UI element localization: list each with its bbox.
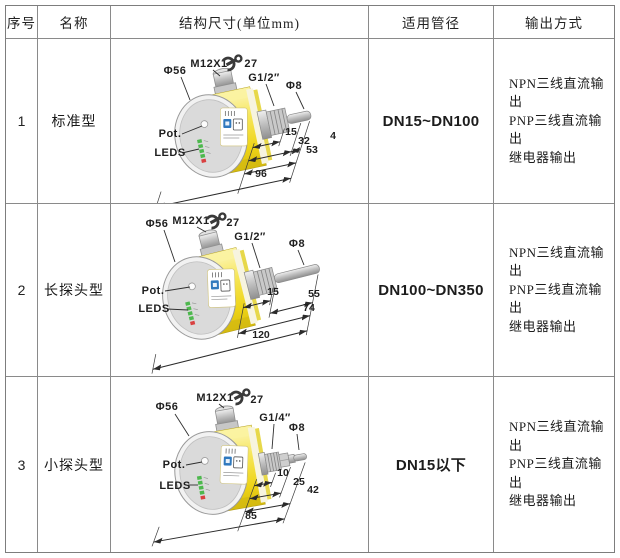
row1-output: NPN三线直流输出 PNP三线直流输出 继电器输出 — [494, 39, 614, 204]
dim-value: 53 — [306, 144, 318, 156]
header-pipe-label: 适用管径 — [402, 12, 460, 32]
product-label — [220, 108, 247, 146]
row2-name: 长探头型 — [38, 204, 111, 377]
probe — [286, 110, 311, 124]
output-line: NPN三线直流输出 — [509, 75, 614, 112]
output-line: NPN三线直流输出 — [509, 418, 614, 455]
output-line: PNP三线直流输出 — [509, 281, 614, 318]
diameter-label: Φ56 — [146, 218, 169, 230]
header-pipe: 适用管径 — [369, 6, 494, 39]
row3-name: 小探头型 — [38, 377, 111, 552]
probe-diameter-label: Φ8 — [289, 422, 305, 434]
pipe-range-label: DN15~DN100 — [383, 113, 480, 130]
dim-value: 55 — [308, 288, 320, 300]
row-number-label: 2 — [18, 282, 26, 298]
process-thread-label: G1/4″ — [259, 412, 291, 424]
output-line: NPN三线直流输出 — [509, 244, 614, 281]
probe-diameter-label: Φ8 — [286, 80, 302, 92]
output-line: 继电器输出 — [509, 149, 577, 167]
header-structure: 结构尺寸(单位mm) — [111, 6, 369, 39]
row1-pipe: DN15~DN100 — [369, 39, 494, 204]
dim-value: 10 — [277, 467, 289, 479]
wrench-size-label: 27 — [250, 394, 263, 406]
dim-value: 25 — [293, 476, 305, 488]
row2-output: NPN三线直流输出 PNP三线直流输出 继电器输出 — [494, 204, 614, 377]
leds-label: LEDS — [154, 147, 185, 159]
spec-sheet: 序号 名称 结构尺寸(单位mm) 适用管径 输出方式 1 标准型 — [0, 0, 620, 558]
process-thread-label: G1/2″ — [248, 72, 280, 84]
header-name: 名称 — [38, 6, 111, 39]
output-line: PNP三线直流输出 — [509, 455, 614, 492]
row1-number: 1 — [6, 39, 38, 204]
product-label — [220, 445, 248, 484]
pipe-range-label: DN100~DN350 — [378, 282, 483, 299]
wrench-size-label: 27 — [244, 58, 257, 70]
row2-number: 2 — [6, 204, 38, 377]
wrench-size-label: 27 — [226, 217, 239, 229]
pot-label: Pot. — [159, 128, 182, 140]
row-name-label: 标准型 — [52, 111, 97, 131]
dim-value: 42 — [307, 484, 319, 496]
row2-diagram-cell: 15 55 74 120 Φ56 M12X1 27 G1/2″ — [111, 204, 369, 377]
row-name-label: 小探头型 — [44, 455, 104, 475]
dim-value: 15 — [267, 286, 279, 298]
row1-name: 标准型 — [38, 39, 111, 204]
product-spec-table: 序号 名称 结构尺寸(单位mm) 适用管径 输出方式 1 标准型 — [5, 5, 615, 553]
dim-value: 74 — [303, 302, 315, 314]
probe-diameter-label: Φ8 — [289, 238, 305, 250]
diameter-label: Φ56 — [164, 65, 187, 77]
row2-pipe: DN100~DN350 — [369, 204, 494, 377]
output-line: PNP三线直流输出 — [509, 112, 614, 149]
leds-label: LEDS — [159, 480, 190, 492]
dim-value: 4 — [330, 130, 336, 142]
row3-pipe: DN15以下 — [369, 377, 494, 552]
header-no-label: 序号 — [7, 12, 36, 32]
header-name-label: 名称 — [60, 12, 89, 32]
row-name-label: 长探头型 — [44, 280, 104, 300]
row3-diagram-cell: 10 25 42 85 Φ56 M12X1 27 G1/4″ — [111, 377, 369, 552]
row-number-label: 1 — [18, 113, 26, 129]
row-number-label: 3 — [18, 457, 26, 473]
probe — [274, 264, 321, 284]
probe — [293, 453, 307, 461]
connector-thread-label: M12X1 — [172, 215, 209, 227]
dim-value: 15 — [285, 126, 297, 138]
header-output: 输出方式 — [494, 6, 614, 39]
row1-diagram-cell: 15 32 4 53 96 Φ56 M12X1 — [111, 39, 369, 204]
sensor-diagram-standard: 15 32 4 53 96 Φ56 M12X1 — [111, 39, 368, 203]
leds-label: LEDS — [138, 303, 169, 315]
connector-thread-label: M12X1 — [196, 392, 233, 404]
sensor-diagram-small-probe: 10 25 42 85 Φ56 M12X1 27 G1/4″ — [111, 377, 368, 551]
dim-value: 120 — [252, 329, 270, 341]
row3-number: 3 — [6, 377, 38, 552]
header-output-label: 输出方式 — [525, 12, 583, 32]
dim-value: 85 — [245, 510, 257, 522]
process-thread-label: G1/2″ — [234, 231, 266, 243]
pot-label: Pot. — [142, 285, 165, 297]
header-structure-label: 结构尺寸(单位mm) — [179, 12, 300, 32]
product-label — [207, 269, 235, 308]
header-no: 序号 — [6, 6, 38, 39]
output-line: 继电器输出 — [509, 318, 577, 336]
diameter-label: Φ56 — [156, 401, 179, 413]
output-line: 继电器输出 — [509, 492, 577, 510]
dim-value: 96 — [255, 168, 267, 180]
row3-output: NPN三线直流输出 PNP三线直流输出 继电器输出 — [494, 377, 614, 552]
sensor-diagram-long-probe: 15 55 74 120 Φ56 M12X1 27 G1/2″ — [111, 204, 368, 376]
pot-label: Pot. — [163, 459, 186, 471]
pipe-range-label: DN15以下 — [396, 454, 466, 475]
